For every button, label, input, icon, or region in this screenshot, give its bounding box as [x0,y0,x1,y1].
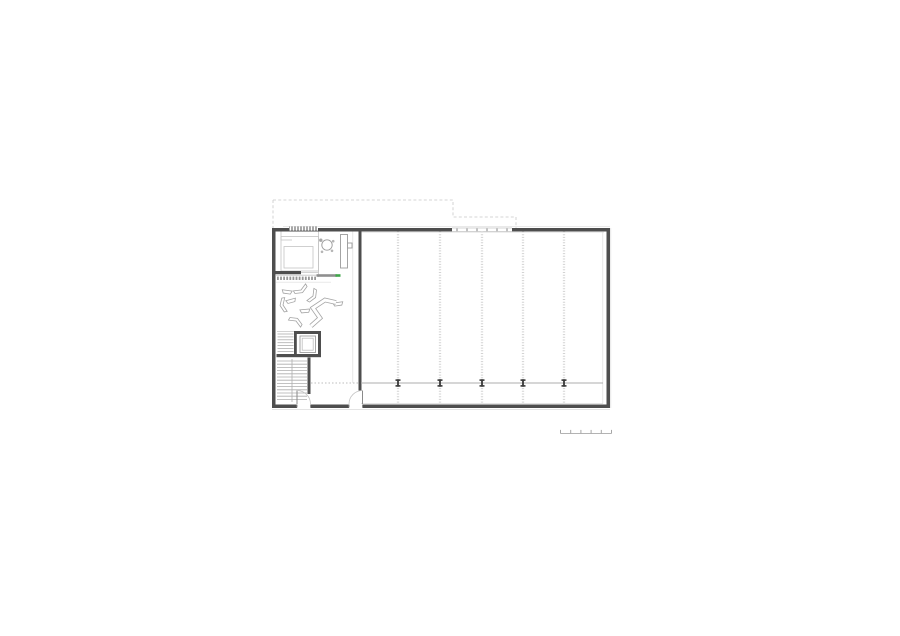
shaft-wall-top [294,331,321,334]
window-band [452,228,512,232]
lobby-room [272,232,352,278]
chair-dot [331,250,334,253]
elevator-core [277,331,322,357]
lounge-chevron [293,284,308,296]
chair-dot [319,239,322,242]
exterior-offset-lines [272,226,611,409]
coat-rack-tick [308,277,310,280]
coat-rack-tick [302,277,304,280]
floor-plan-page [0,0,900,636]
lounge-chevron [279,298,287,313]
shaft-wall-left [294,331,297,357]
scale-bar [561,430,612,434]
desk-return [348,243,353,248]
lounge-seat [300,309,310,313]
lobby-corner-step [281,232,292,241]
green-marker [336,274,341,277]
floor-plan-canvas [0,0,900,636]
zigzag-bench [311,300,336,326]
coat-rack-tick [305,277,307,280]
coat-rack-tick [286,277,288,280]
door-swing [349,391,363,409]
coat-rack-tick [283,277,285,280]
service-stair-treads [278,334,294,351]
hall-bay-lines [398,232,564,405]
wall-west [272,228,276,408]
lounge-chevron [288,315,303,327]
coat-rack-tick [311,277,313,280]
coat-rack-tick [277,277,279,280]
door-opening [297,404,311,408]
coat-rack-tick [296,277,298,280]
wall-south [272,405,610,409]
coat-rack-tick [289,277,291,280]
bench-bar [317,274,337,277]
door-arc [349,391,363,405]
lounge-furniture [279,284,343,327]
canopy-dashed-outline [273,200,516,228]
reception-desk [341,235,353,269]
lounge-seat [282,290,292,295]
interior-wall [359,231,362,391]
chair-dot [321,251,324,254]
coat-rack-tick [299,277,301,280]
desk-body [341,235,348,269]
coat-rack-tick [314,277,316,280]
coat-rack-tick [293,277,295,280]
round-table [322,240,332,250]
coat-rack-tick [280,277,282,280]
lounge-seat [286,298,296,304]
shaft-wall-right [318,331,321,357]
wall-east [607,228,611,408]
lobby-desk-block [284,247,313,269]
lobby-south-wall [272,271,301,274]
stair-wall-right [308,358,311,395]
core-wall-bottom [277,354,322,357]
lounge-chevron [307,288,319,303]
round-table-group [319,239,334,254]
canopy-edge [273,200,516,228]
coat-rack [276,274,341,282]
chair-dot [332,240,335,243]
interior-partition [353,231,362,391]
main-staircase [277,358,311,403]
door-opening [349,404,363,408]
entrance-grille [289,226,318,230]
wall-north [272,228,610,232]
